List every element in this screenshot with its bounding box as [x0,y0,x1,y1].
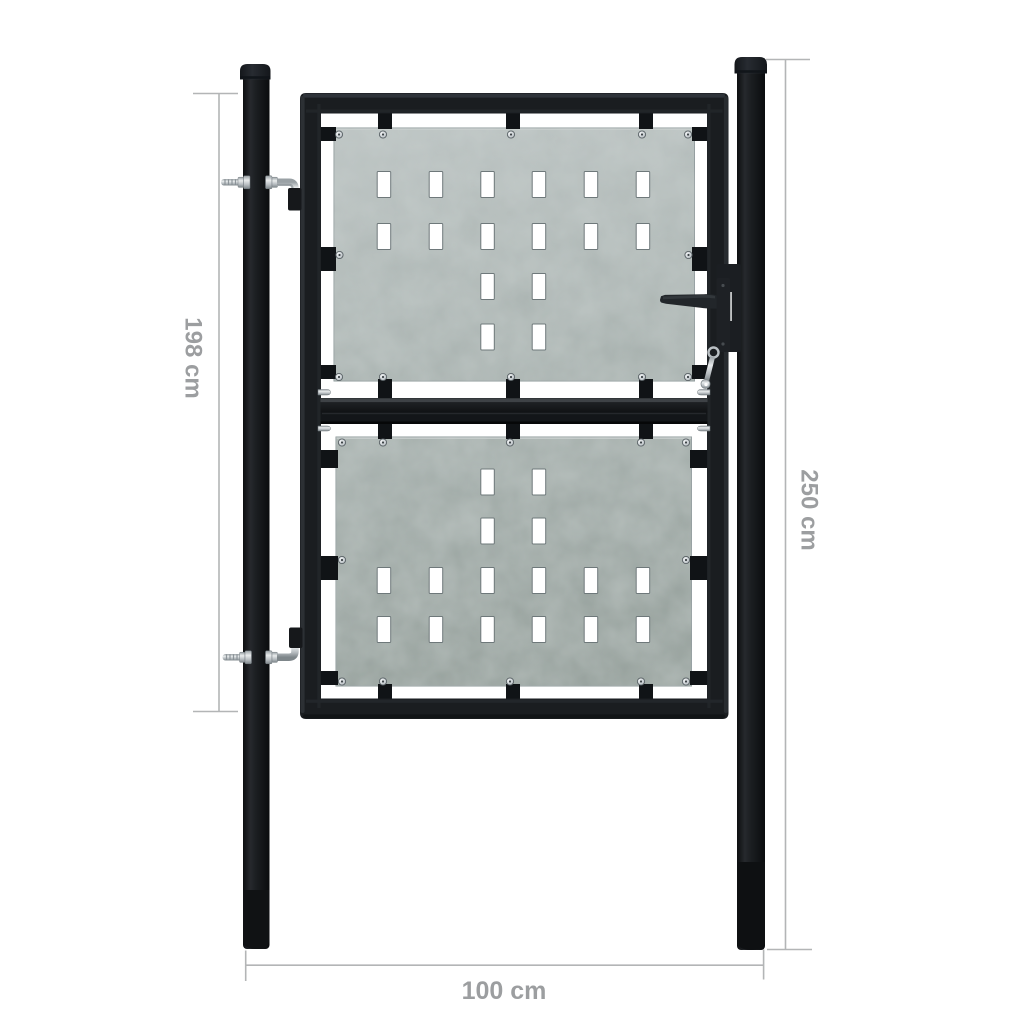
svg-text:250 cm: 250 cm [796,469,823,550]
svg-text:198 cm: 198 cm [180,317,207,398]
svg-text:100 cm: 100 cm [462,977,547,1005]
